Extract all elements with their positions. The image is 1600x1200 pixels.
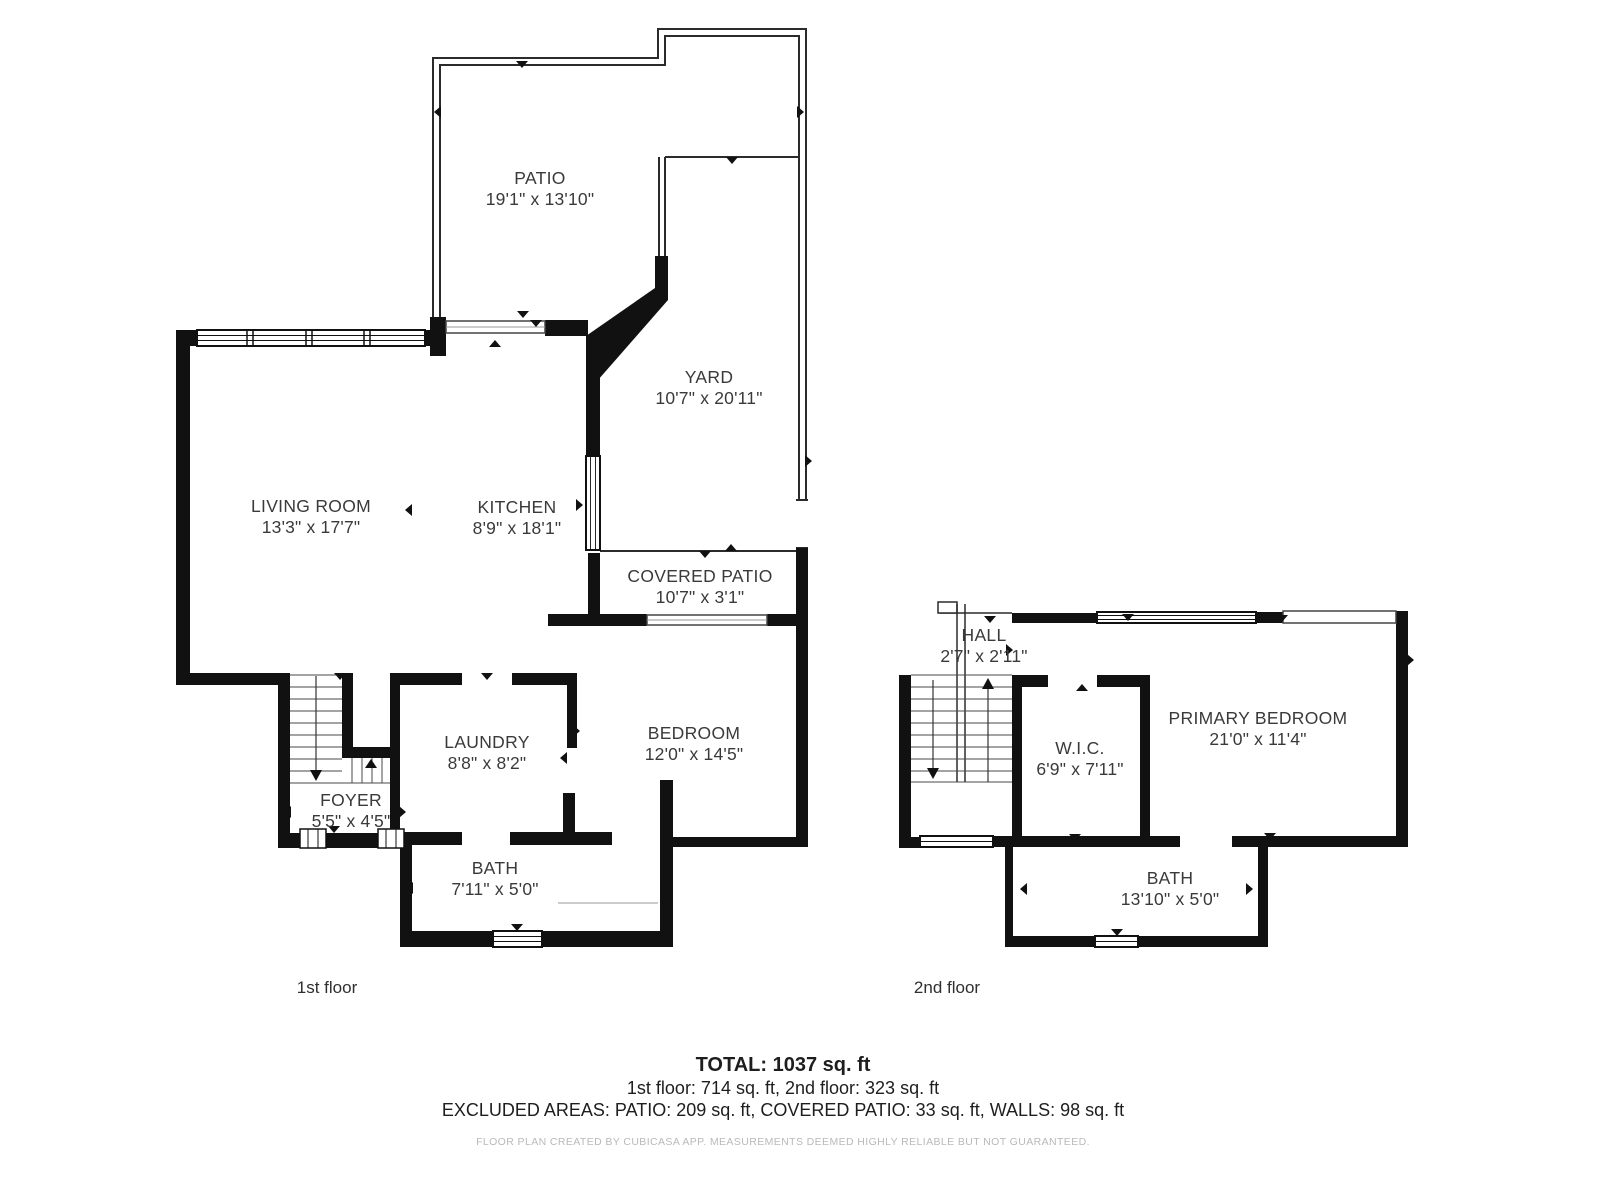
floorplan-canvas bbox=[0, 0, 1600, 1200]
floor1-stairs bbox=[290, 675, 390, 783]
room-dims: 8'9" x 18'1" bbox=[473, 518, 562, 539]
room-dims: 10'7" x 3'1" bbox=[627, 587, 772, 608]
floor1-outdoor-outline bbox=[433, 29, 808, 551]
room-label-wic: W.I.C. 6'9" x 7'11" bbox=[1036, 738, 1123, 780]
floor1-caption: 1st floor bbox=[297, 978, 357, 998]
room-dims: 7'11" x 5'0" bbox=[451, 879, 538, 900]
excluded-areas-text: EXCLUDED AREAS: PATIO: 209 sq. ft, COVER… bbox=[0, 1099, 1566, 1121]
floor1-windows bbox=[197, 321, 767, 947]
room-label-kitchen: KITCHEN 8'9" x 18'1" bbox=[473, 497, 562, 539]
room-name: HALL bbox=[940, 625, 1027, 646]
room-label-yard: YARD 10'7" x 20'11" bbox=[655, 367, 762, 409]
room-dims: 13'3" x 17'7" bbox=[251, 517, 371, 538]
room-name: PRIMARY BEDROOM bbox=[1169, 708, 1348, 729]
disclaimer-text: FLOOR PLAN CREATED BY CUBICASA APP. MEAS… bbox=[0, 1136, 1566, 1148]
room-label-covered-patio: COVERED PATIO 10'7" x 3'1" bbox=[627, 566, 772, 608]
room-label-bath-1: BATH 7'11" x 5'0" bbox=[451, 858, 538, 900]
room-label-primary-bedroom: PRIMARY BEDROOM 21'0" x 11'4" bbox=[1169, 708, 1348, 750]
room-name: BATH bbox=[1121, 868, 1220, 889]
room-name: BATH bbox=[451, 858, 538, 879]
room-name: W.I.C. bbox=[1036, 738, 1123, 759]
room-name: KITCHEN bbox=[473, 497, 562, 518]
room-label-bedroom: BEDROOM 12'0" x 14'5" bbox=[645, 723, 744, 765]
room-label-laundry: LAUNDRY 8'8" x 8'2" bbox=[444, 732, 529, 774]
room-dims: 12'0" x 14'5" bbox=[645, 744, 744, 765]
room-name: LIVING ROOM bbox=[251, 496, 371, 517]
room-dims: 10'7" x 20'11" bbox=[655, 388, 762, 409]
room-name: YARD bbox=[655, 367, 762, 388]
floor-areas-text: 1st floor: 714 sq. ft, 2nd floor: 323 sq… bbox=[0, 1077, 1566, 1099]
floor2-stairs bbox=[911, 675, 1012, 782]
room-label-living-room: LIVING ROOM 13'3" x 17'7" bbox=[251, 496, 371, 538]
floorplan-page: PATIO 19'1" x 13'10" YARD 10'7" x 20'11"… bbox=[0, 0, 1600, 1200]
room-dims: 21'0" x 11'4" bbox=[1169, 729, 1348, 750]
room-dims: 8'8" x 8'2" bbox=[444, 753, 529, 774]
total-area-text: TOTAL: 1037 sq. ft bbox=[0, 1054, 1566, 1077]
room-label-bath-2: BATH 13'10" x 5'0" bbox=[1121, 868, 1220, 910]
room-name: PATIO bbox=[486, 168, 595, 189]
room-dims: 13'10" x 5'0" bbox=[1121, 889, 1220, 910]
room-dims: 6'9" x 7'11" bbox=[1036, 759, 1123, 780]
room-name: COVERED PATIO bbox=[627, 566, 772, 587]
area-summary: TOTAL: 1037 sq. ft 1st floor: 714 sq. ft… bbox=[0, 1054, 1566, 1121]
floor2-caption: 2nd floor bbox=[914, 978, 980, 998]
room-name: LAUNDRY bbox=[444, 732, 529, 753]
room-label-hall: HALL 2'7" x 2'11" bbox=[940, 625, 1027, 667]
room-dims: 5'5" x 4'5" bbox=[312, 811, 391, 832]
room-dims: 2'7" x 2'11" bbox=[940, 646, 1027, 667]
room-name: BEDROOM bbox=[645, 723, 744, 744]
room-label-patio: PATIO 19'1" x 13'10" bbox=[486, 168, 595, 210]
room-label-foyer: FOYER 5'5" x 4'5" bbox=[312, 790, 391, 832]
room-name: FOYER bbox=[312, 790, 391, 811]
room-dims: 19'1" x 13'10" bbox=[486, 189, 595, 210]
